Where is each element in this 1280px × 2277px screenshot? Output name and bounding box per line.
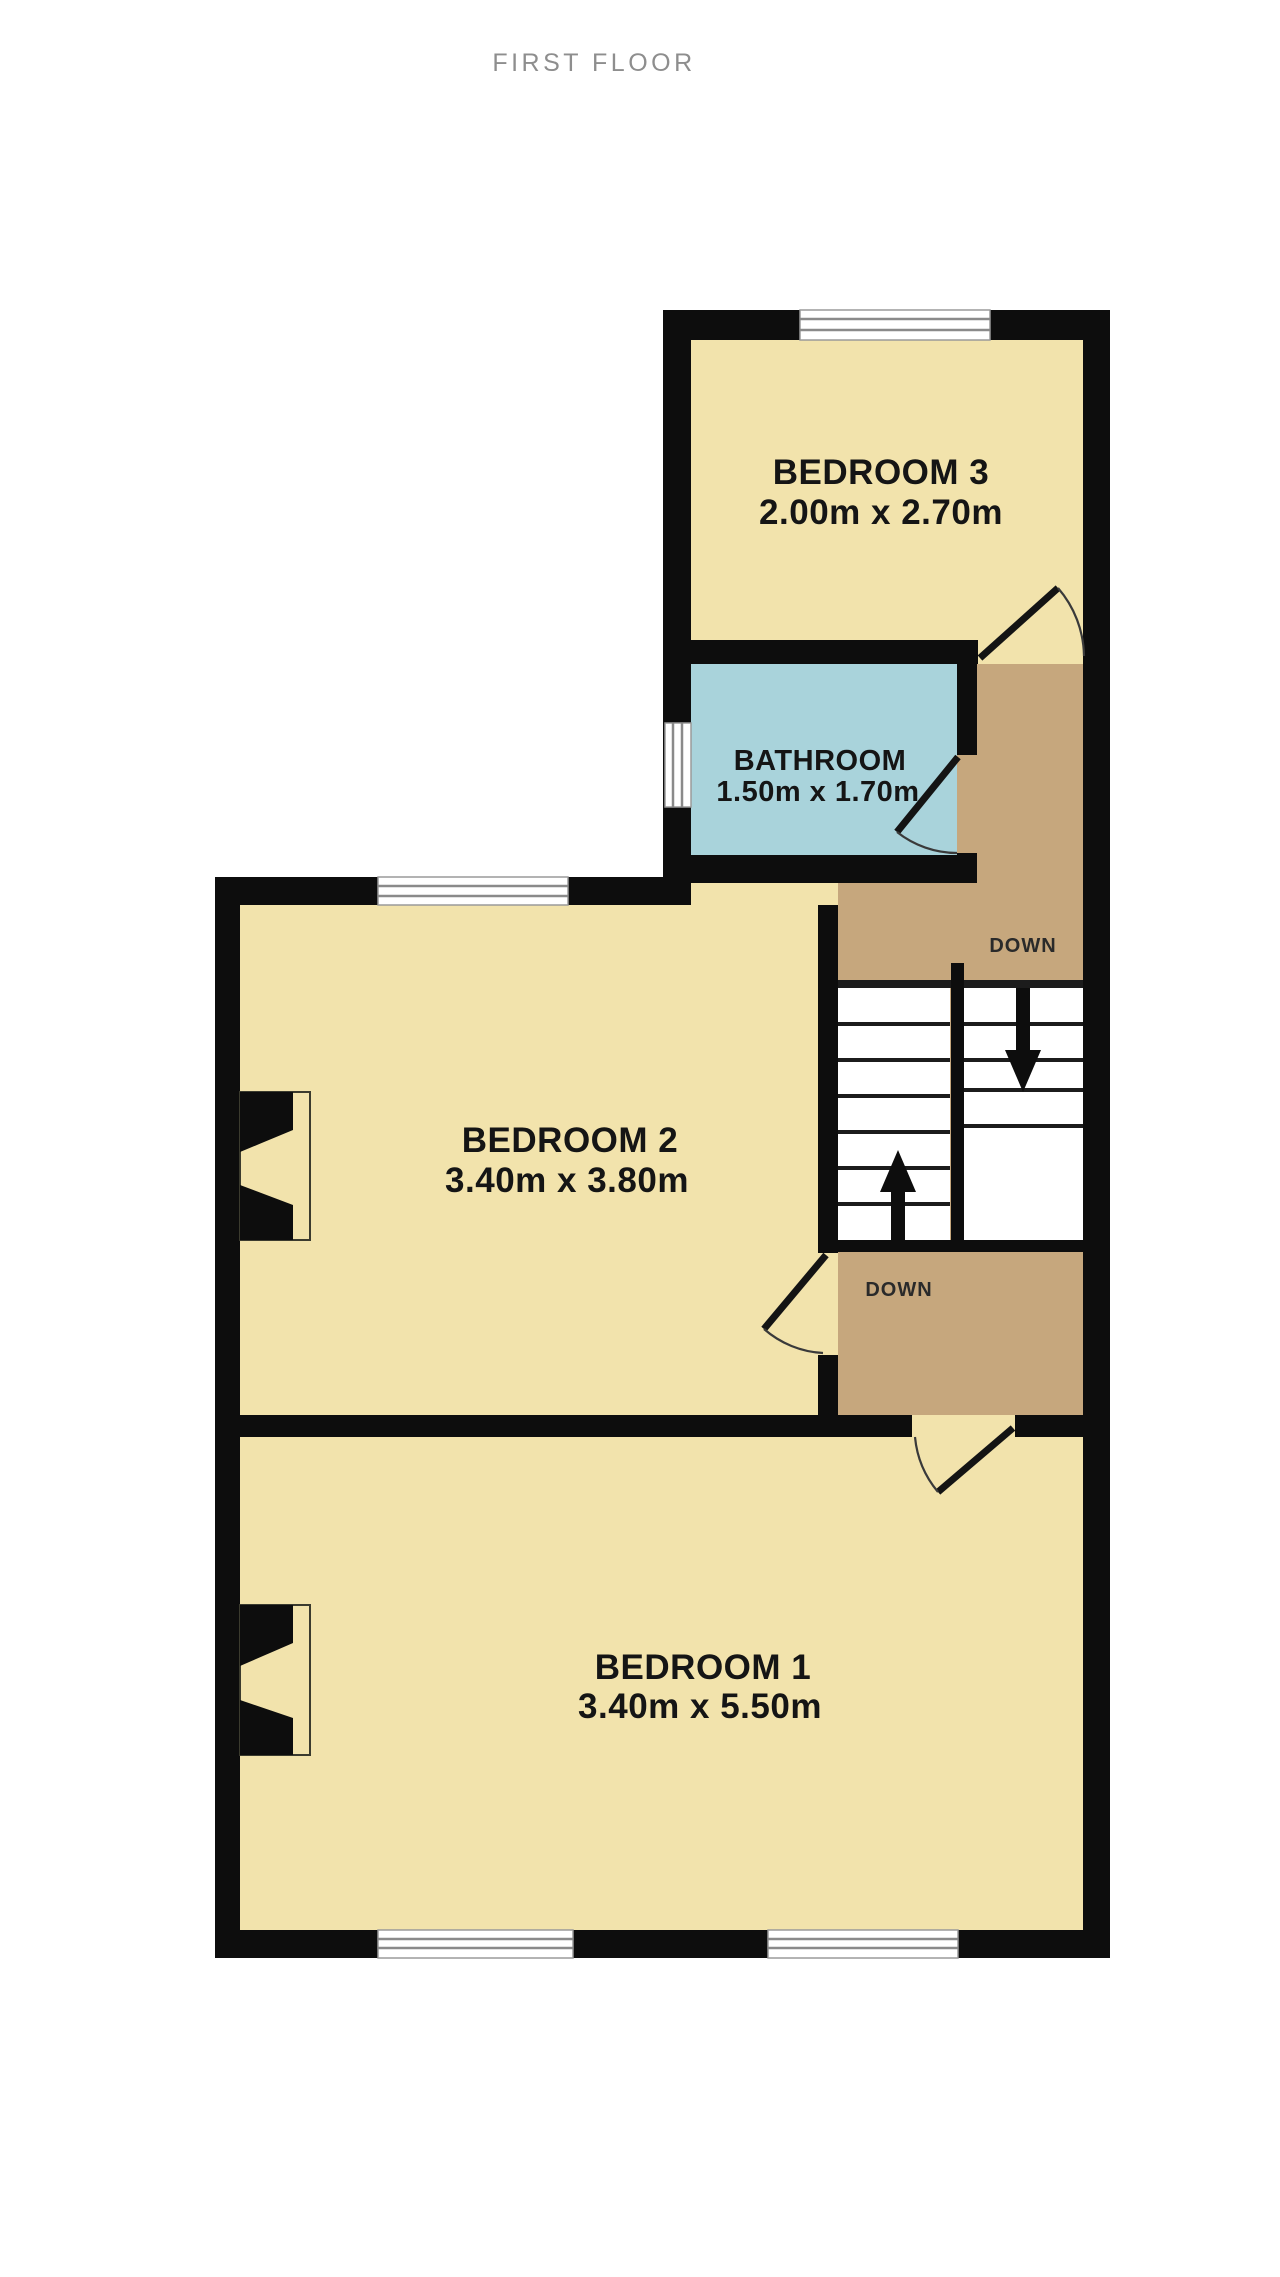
bedroom-2-window [378,877,568,905]
bedroom-3-window [800,310,990,340]
bedroom-2-right-wall-upper [818,905,838,1253]
stair-tread [838,1094,950,1098]
floor-plan-page: FIRST FLOOR BEDROOM 3 2.00m x 2.70m BATH… [0,0,1280,2277]
bathroom-dims: 1.50m x 1.70m [716,776,919,808]
bedroom-3-dims: 2.00m x 2.70m [759,493,1003,532]
staircase [838,963,1083,1252]
bathroom-window [665,723,691,807]
stair-tread [838,1058,950,1062]
bathroom-bottom-wall [663,855,977,883]
bedroom-2-dims: 3.40m x 3.80m [445,1161,689,1200]
bedroom-1-window-left [378,1930,573,1958]
window-frame [378,1930,573,1958]
bedroom-1-name: BEDROOM 1 [595,1648,811,1687]
floor-plan-drawing: FIRST FLOOR BEDROOM 3 2.00m x 2.70m BATH… [0,0,1280,2277]
bedroom-2-name: BEDROOM 2 [462,1121,678,1160]
bedroom-1-window-right [768,1930,958,1958]
bathroom-right-wall-upper [957,640,977,755]
down-label-upper: DOWN [989,935,1056,957]
bedroom-3-bottom-wall [663,640,978,664]
bedroom-divider-wall-left [215,1415,912,1437]
window-frame [378,877,568,905]
outer-wall-upper-left [663,310,691,905]
window-frame [768,1930,958,1958]
stair-tread [963,1124,1083,1128]
stair-tread [838,1130,950,1134]
bedroom-1-dims: 3.40m x 5.50m [578,1687,822,1726]
window-frame [800,310,990,340]
plan-title: FIRST FLOOR [492,49,695,77]
bedroom-divider-wall-right [1015,1415,1083,1437]
lower-landing-floor [818,1252,1083,1437]
stair-divider-wall [951,963,964,1240]
down-label-lower: DOWN [865,1279,932,1301]
window-frame [665,723,691,807]
outer-wall-right [1083,310,1110,1958]
stair-tread [838,1022,950,1026]
bedroom-3-name: BEDROOM 3 [773,453,989,492]
bathroom-name: BATHROOM [734,745,907,777]
stair-bottom-edge [838,1240,1083,1252]
outer-wall-bottom [215,1930,1110,1958]
